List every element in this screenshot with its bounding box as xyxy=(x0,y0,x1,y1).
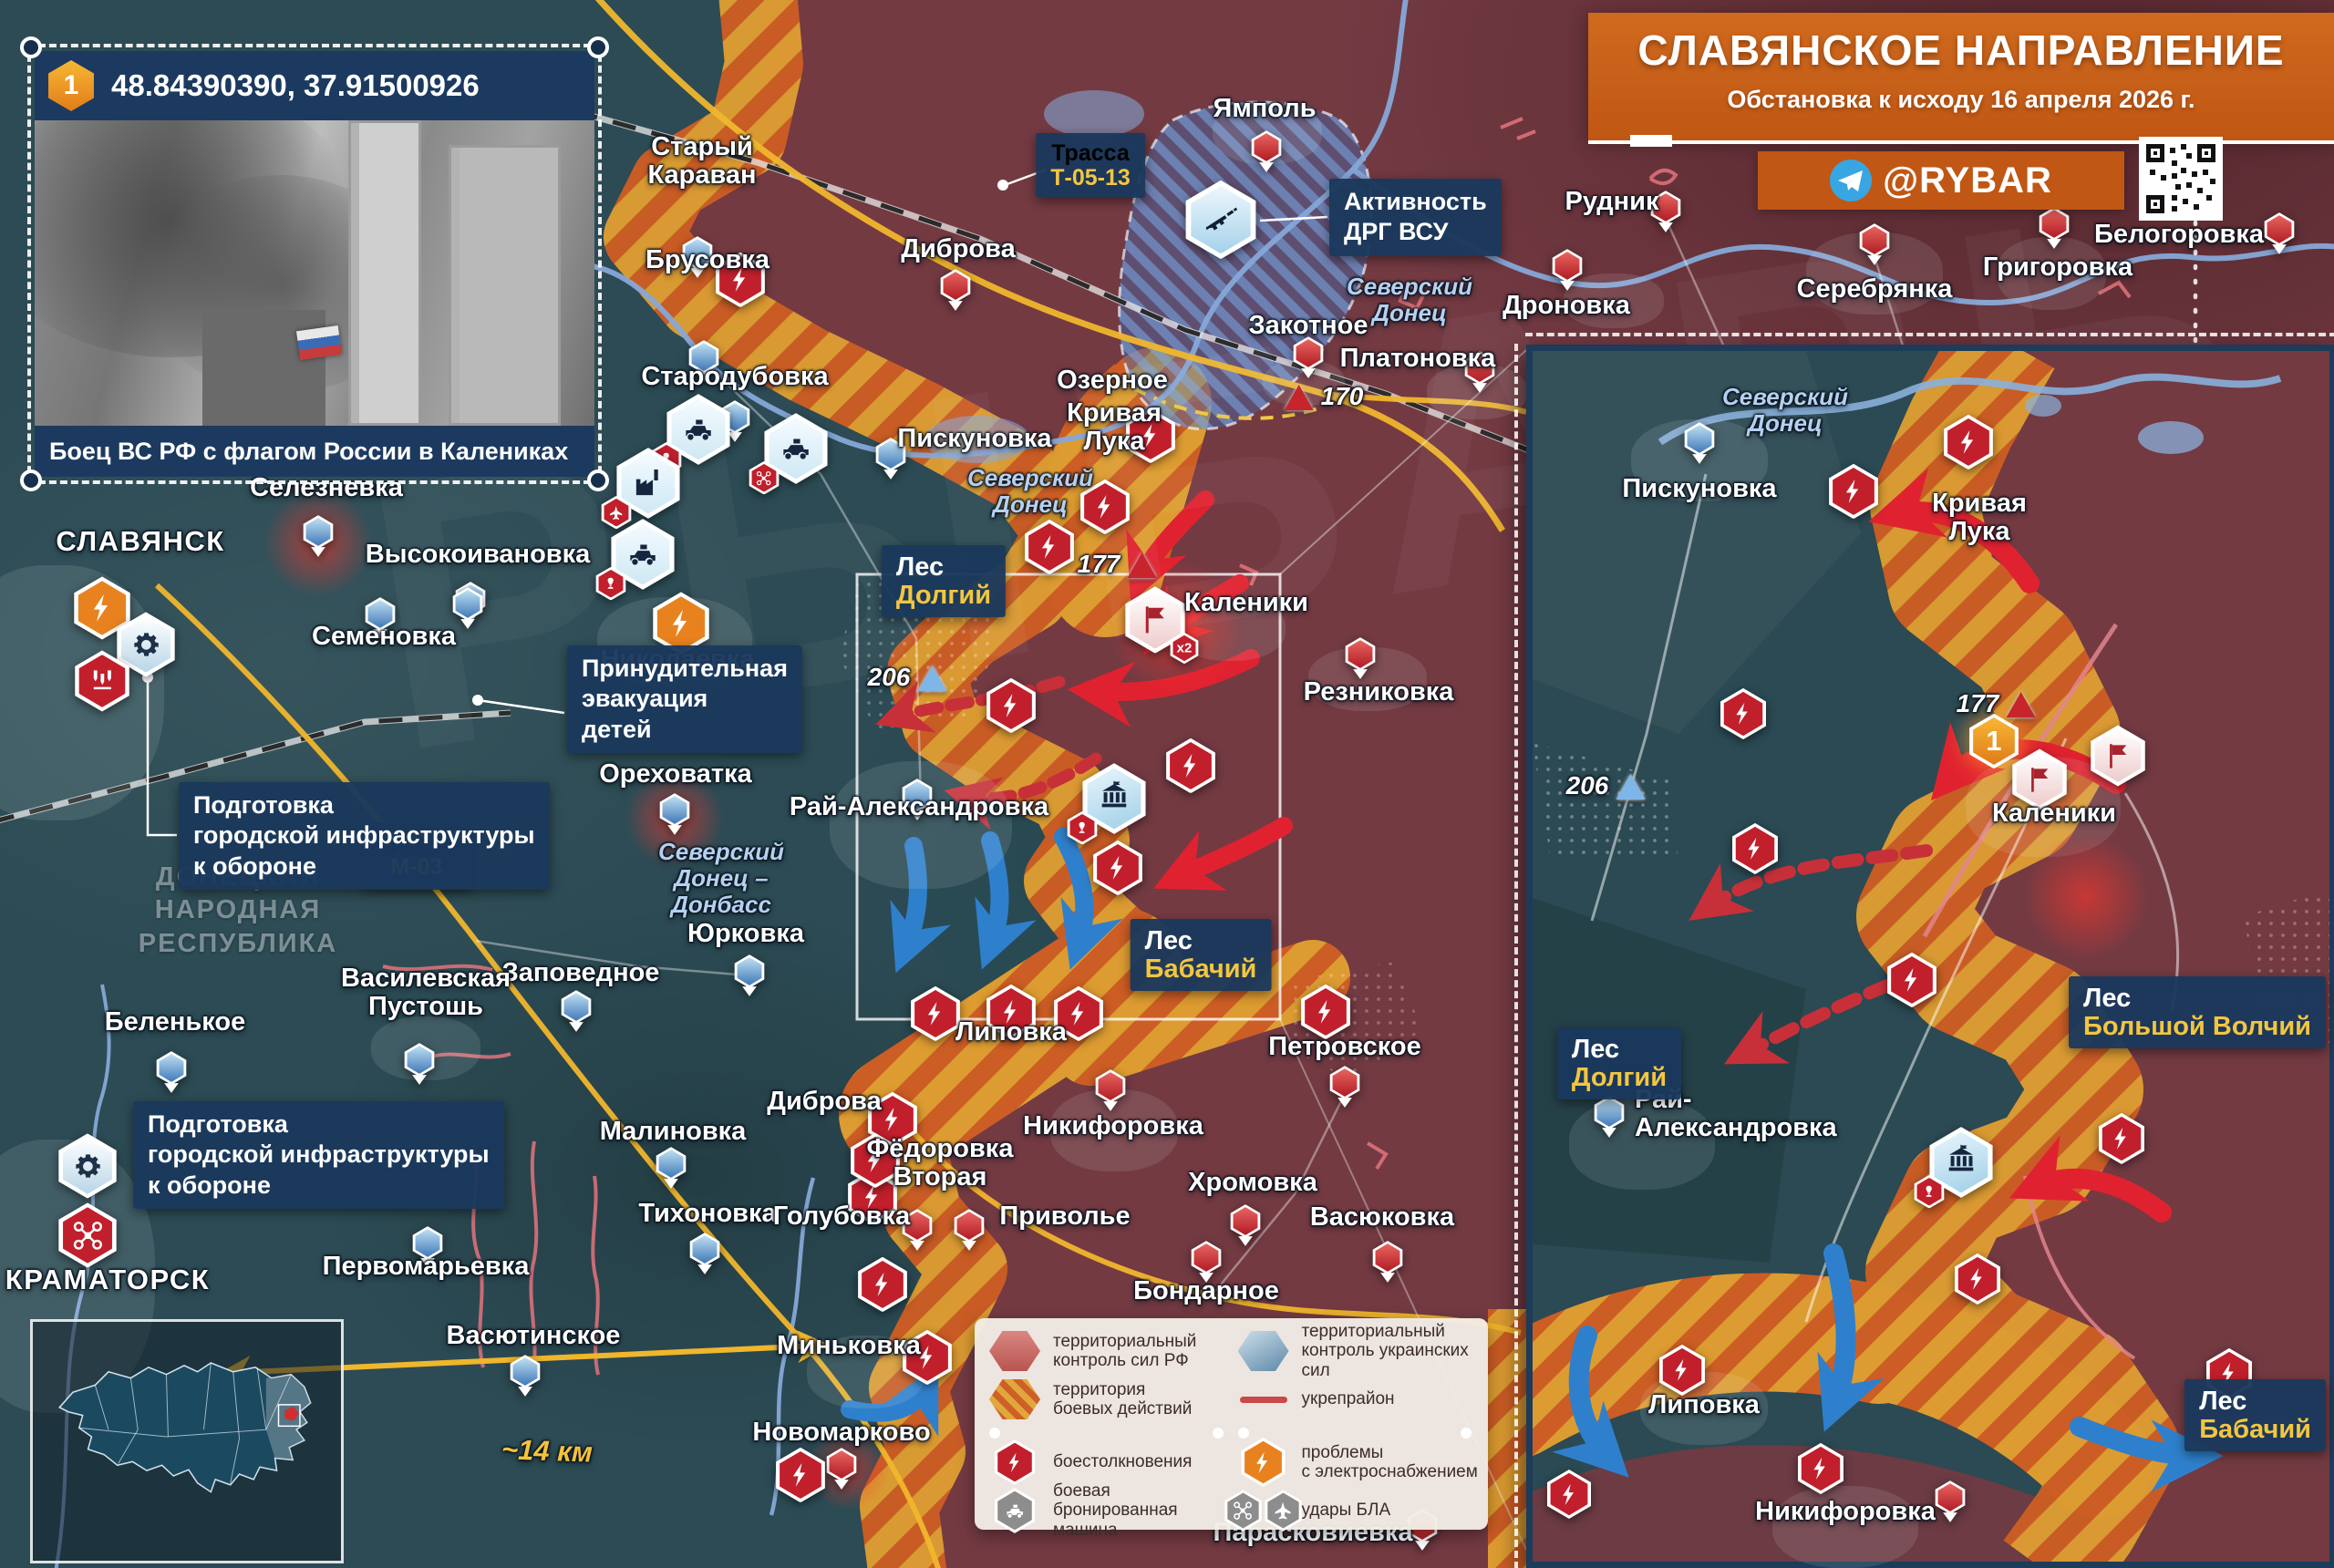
legend-item-uav-strikes: удары БЛА xyxy=(1236,1491,1480,1531)
clash-icon xyxy=(986,678,1037,733)
legend-item-label: территориальный контроль украинских сил xyxy=(1302,1322,1480,1380)
armored-vehicle-icon xyxy=(987,1488,1042,1533)
clash-icon xyxy=(1943,415,1994,469)
height-value: 170 xyxy=(1321,383,1364,410)
height-marker: 170 xyxy=(1285,383,1364,410)
town-label: КриваяЛука xyxy=(1067,399,1162,455)
town-label: Пискуновка xyxy=(897,425,1051,453)
armored-vehicle-icon xyxy=(610,519,676,590)
photo-header: 1 48.84390390, 37.91500926 xyxy=(35,51,594,120)
drone-badge xyxy=(749,461,780,495)
power-problems-icon xyxy=(1236,1438,1291,1487)
combat-zone-icon xyxy=(987,1379,1042,1419)
town-label: Васютинское xyxy=(447,1322,621,1350)
town-label: Брусовка xyxy=(645,246,769,274)
photo-caption: Боец ВС РФ с флагом России в Калениках xyxy=(35,426,594,477)
bomb-badge xyxy=(1914,1175,1945,1209)
rf-town-marker xyxy=(1859,223,1890,265)
frame-corner xyxy=(20,469,42,491)
town-label: Григоровка xyxy=(1983,253,2133,282)
clash-icon xyxy=(1024,520,1075,574)
forest-label: ЛесБабачий xyxy=(2184,1379,2326,1451)
distance-label: ~14 км xyxy=(501,1435,594,1468)
map-title: СЛАВЯНСКОЕ НАПРАВЛЕНИЕ xyxy=(1588,26,2334,75)
town-label: Приволье xyxy=(999,1202,1130,1231)
town-label: Липовка xyxy=(1648,1391,1760,1419)
rf-town-marker xyxy=(1251,130,1282,172)
height-value: 177 xyxy=(1078,551,1121,578)
forest-label: ЛесБабачий xyxy=(1131,919,1272,991)
town-label: Малиновка xyxy=(600,1118,747,1146)
clash-icon xyxy=(1658,1345,1706,1396)
qr-code xyxy=(2139,137,2223,221)
town-label: Никифоровка xyxy=(1023,1112,1203,1140)
clash-icon xyxy=(775,1448,826,1502)
infrastructure-icon xyxy=(57,1133,118,1198)
town-label: Дроновка xyxy=(1503,292,1630,320)
rf-town-marker xyxy=(1230,1204,1261,1246)
rf-town-marker xyxy=(940,269,971,311)
ua-town-marker xyxy=(452,587,483,629)
armored-vehicle-icon xyxy=(763,413,829,484)
legend-item-combat-zone: территория боевых действий xyxy=(987,1379,1231,1419)
town-label: Озерное xyxy=(1057,366,1168,395)
town-label: Никифоровка xyxy=(1755,1498,1936,1526)
town-label: Каленики xyxy=(1184,589,1308,617)
town-label: Тихоновка xyxy=(638,1200,776,1228)
height-marker: 177 xyxy=(1957,690,2036,717)
flag-capture-icon: x2 xyxy=(1124,586,1186,653)
ua-town-marker xyxy=(404,1043,435,1085)
legend: территориальный контроль сил РФ территор… xyxy=(975,1318,1488,1530)
title-underline-tick xyxy=(1630,135,1672,147)
town-label: КриваяЛука xyxy=(1932,490,2027,545)
frame-corner xyxy=(587,36,609,58)
fortified-line-icon xyxy=(1236,1397,1291,1403)
legend-item-label: боевая бронированная машина xyxy=(1053,1481,1231,1540)
height-triangle xyxy=(917,665,946,691)
height-triangle xyxy=(2006,692,2035,717)
town-label: Хромовка xyxy=(1188,1169,1317,1197)
rf-town-marker xyxy=(1552,249,1583,291)
rf-town-marker xyxy=(954,1209,985,1251)
legend-item-fortified-line: укрепрайон xyxy=(1236,1379,1480,1419)
river-label: СеверскийДонец xyxy=(1347,273,1472,326)
town-label: Стародубовка xyxy=(641,363,828,391)
photo-image xyxy=(35,120,594,426)
forest-label: ЛесБольшой Волчий xyxy=(2069,976,2326,1048)
height-marker: 206 xyxy=(868,664,947,691)
town-label: Высокоивановка xyxy=(366,541,591,569)
legend-item-control-ua: территориальный контроль украинских сил xyxy=(1236,1331,1480,1371)
clash-icon xyxy=(1720,688,1767,739)
rf-town-marker xyxy=(1293,336,1324,378)
town-label: ВасилевскаяПустошь xyxy=(341,965,511,1020)
ua-town-marker xyxy=(1594,1096,1625,1138)
ua-town-marker xyxy=(689,1233,720,1274)
telegram-icon xyxy=(1830,160,1872,201)
control-ua-icon xyxy=(1236,1331,1291,1371)
river-label: СеверскийДонец –Донбасс xyxy=(658,839,784,918)
town-label: Петровское xyxy=(1268,1033,1420,1061)
legend-item-label: удары БЛА xyxy=(1302,1501,1391,1520)
ua-town-marker xyxy=(734,954,765,996)
town-label: Диброва xyxy=(767,1088,881,1116)
town-label: Васюковка xyxy=(1310,1203,1454,1232)
town-label: Платоновка xyxy=(1340,345,1496,373)
town-label: ФёдоровкаВторая xyxy=(867,1135,1014,1191)
town-label: Серебрянка xyxy=(1797,275,1953,304)
town-label: Белогоровка xyxy=(2094,221,2264,249)
airstrike-icon xyxy=(74,651,130,712)
strike-glow xyxy=(2022,832,2150,960)
legend-item-label: боестолкновения xyxy=(1053,1452,1192,1471)
town-label: Липовка xyxy=(955,1018,1067,1047)
height-value: 177 xyxy=(1957,690,1999,717)
height-value: 206 xyxy=(868,664,911,691)
city-label: КРАМАТОРСК xyxy=(5,1265,210,1295)
height-triangle xyxy=(1616,774,1645,799)
legend-item-label: укрепрайон xyxy=(1302,1389,1395,1408)
callout-label: Подготовкагородской инфраструктурык обор… xyxy=(133,1101,504,1209)
legend-item-armored-vehicle: боевая бронированная машина xyxy=(987,1491,1231,1531)
clash-icon xyxy=(910,986,961,1041)
town-label: СтарыйКараван xyxy=(647,133,756,189)
callout-label: Подготовкагородской инфраструктурык обор… xyxy=(179,782,550,890)
height-marker: 206 xyxy=(1566,772,1646,799)
channel-bar: @RYBAR xyxy=(1758,151,2124,210)
town-label: Ямполь xyxy=(1213,95,1316,123)
legend-item-clashes: боестолкновения xyxy=(987,1442,1231,1482)
rf-town-marker xyxy=(2039,207,2070,249)
rf-town-marker xyxy=(826,1448,857,1490)
clash-icon xyxy=(1731,823,1779,874)
ua-town-marker xyxy=(156,1051,187,1093)
clash-icon xyxy=(2098,1113,2145,1164)
town-label: Ореховатка xyxy=(599,760,752,789)
clash-icon xyxy=(857,1257,908,1312)
town-label: Миньковка xyxy=(777,1332,921,1360)
town-label: Новомарково xyxy=(752,1418,930,1447)
height-triangle xyxy=(1127,552,1156,578)
rf-town-marker xyxy=(1372,1241,1403,1283)
photo-ref-number: 1 xyxy=(47,60,95,111)
channel-name: @RYBAR xyxy=(1883,160,2052,201)
legend-item-control-rf: территориальный контроль сил РФ xyxy=(987,1331,1231,1371)
town-label: Пискуновка xyxy=(1622,475,1776,503)
town-label: Юрковка xyxy=(687,920,804,948)
height-marker: 177 xyxy=(1078,551,1157,578)
detail-inset: 1 СеверскийДонецПискуновкаКриваяЛукаКале… xyxy=(1526,345,2334,1568)
clash-icon xyxy=(1828,464,1879,519)
map-subtitle: Обстановка к исходу 16 апреля 2026 г. xyxy=(1588,86,2334,114)
ua-town-marker xyxy=(561,990,592,1032)
height-value: 206 xyxy=(1566,772,1609,799)
town-label: Беленькое xyxy=(105,1008,245,1037)
town-label: Резниковка xyxy=(1304,678,1454,707)
forest-label: ЛесДолгий xyxy=(882,545,1006,617)
height-triangle xyxy=(1285,385,1314,410)
ua-town-marker xyxy=(510,1355,541,1397)
control-rf-icon xyxy=(987,1331,1042,1371)
clash-icon xyxy=(1546,1470,1592,1519)
river-label: СеверскийДонец xyxy=(967,465,1093,518)
town-label: Заповедное xyxy=(502,959,660,987)
town-label: Голубовка xyxy=(773,1202,910,1231)
legend-item-label: проблемы с электроснабжением xyxy=(1302,1443,1478,1482)
photo-coordinates: 48.84390390, 37.91500926 xyxy=(111,68,480,103)
title-banner: СЛАВЯНСКОЕ НАПРАВЛЕНИЕ Обстановка к исхо… xyxy=(1588,13,2334,140)
callout-label: АктивностьДРГ ВСУ xyxy=(1329,179,1502,256)
river-label: СеверскийДонец xyxy=(1722,384,1848,437)
town-label: Бондарное xyxy=(1133,1277,1279,1305)
admin-building-icon xyxy=(1928,1127,1994,1198)
ukraine-minimap xyxy=(30,1319,344,1563)
town-label: Первомарьевка xyxy=(323,1253,530,1281)
clash-icon xyxy=(1165,738,1216,793)
forest-label: ЛесДолгий xyxy=(1557,1027,1681,1099)
town-label: Рай-Александровка xyxy=(790,793,1048,821)
industrial-site-icon xyxy=(615,448,681,519)
ua-town-marker xyxy=(1684,422,1715,464)
rf-town-marker xyxy=(2264,212,2295,254)
photo-inset: 1 48.84390390, 37.91500926 Боец ВС РФ с … xyxy=(35,51,594,477)
legend-item-power-problems: проблемы с электроснабжением xyxy=(1236,1442,1480,1482)
city-label: СЛАВЯНСК xyxy=(56,527,224,557)
rf-town-marker xyxy=(1935,1480,1966,1522)
bomb-badge xyxy=(1067,811,1098,845)
russian-flag xyxy=(296,325,342,360)
town-label: Семеновка xyxy=(312,623,456,651)
callout-label: Принудительнаяэвакуациядетей xyxy=(567,645,802,753)
map-canvas: РЫБАРЬ xyxy=(0,0,2334,1568)
town-label: Рудник xyxy=(1565,188,1658,216)
clash-icon xyxy=(1092,841,1143,895)
clash-icon xyxy=(1886,953,1937,1007)
clashes-icon xyxy=(987,1439,1042,1485)
flag-capture-icon xyxy=(2090,726,2146,787)
rf-town-marker xyxy=(1345,637,1376,679)
clash-icon xyxy=(1954,1253,2001,1305)
ua-town-marker xyxy=(659,793,690,835)
clash-icon xyxy=(1797,1443,1844,1494)
uav-strikes-icon xyxy=(1236,1490,1291,1531)
drone-strike-icon xyxy=(57,1202,118,1267)
ua-town-marker xyxy=(303,515,334,557)
ua-town-marker xyxy=(656,1147,687,1189)
rf-town-marker xyxy=(1095,1069,1126,1111)
frame-corner xyxy=(587,469,609,491)
town-label: Диброва xyxy=(901,235,1015,263)
drg-activity-icon xyxy=(1184,181,1257,259)
multiplier-badge: x2 xyxy=(1170,633,1199,665)
rf-town-marker xyxy=(1329,1066,1360,1108)
admin-building-icon xyxy=(1081,763,1147,834)
legend-item-label: территория боевых действий xyxy=(1053,1380,1192,1419)
town-label: Каленики xyxy=(1992,799,2116,828)
frame-corner xyxy=(20,36,42,58)
legend-item-label: территориальный контроль сил РФ xyxy=(1053,1332,1196,1371)
road-label: ТрассаТ-05-13 xyxy=(1036,133,1145,198)
bomb-badge xyxy=(595,567,626,601)
